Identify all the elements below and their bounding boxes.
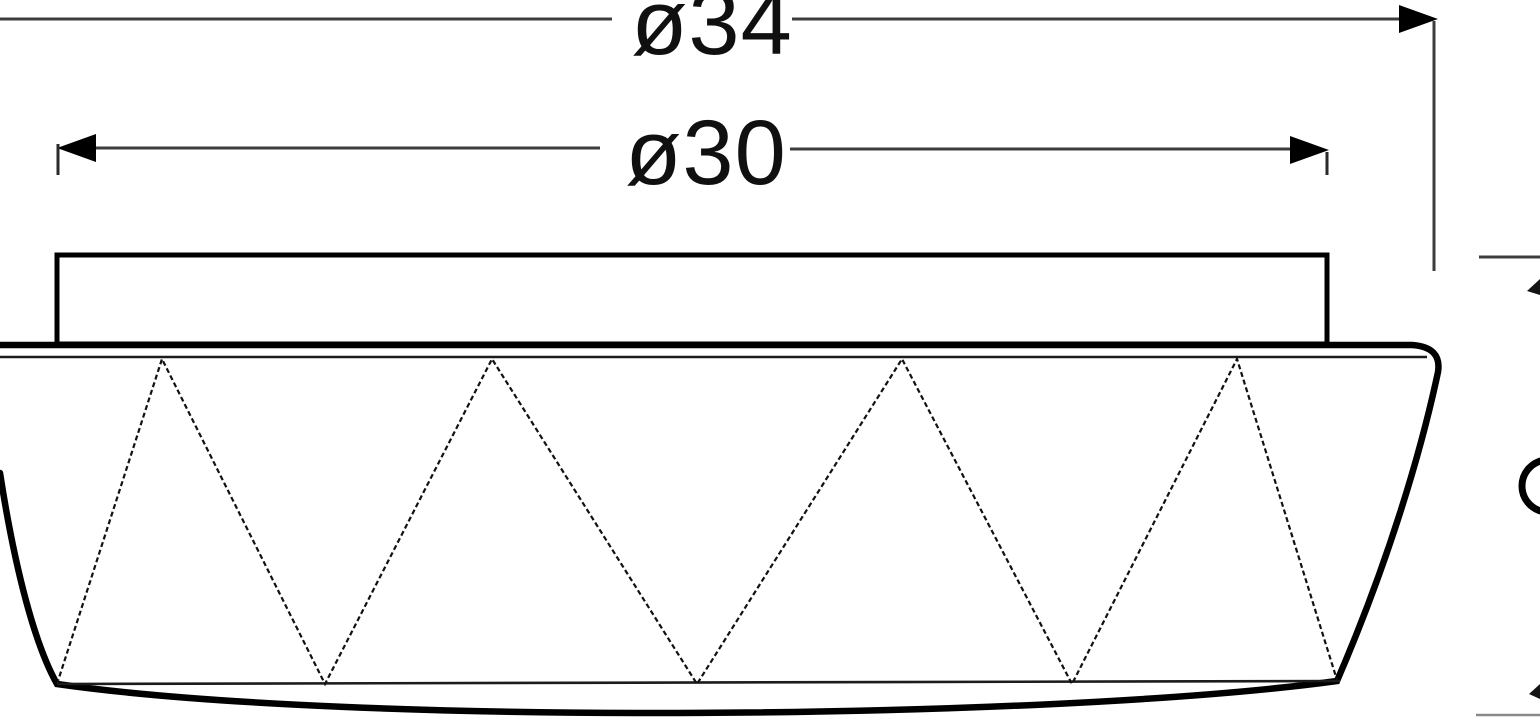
partial-arrow-bottom-icon — [1529, 684, 1540, 699]
partial-arrow-top-icon — [1527, 279, 1540, 295]
arrowhead-left-icon — [57, 134, 96, 162]
dim-label-outer-diameter: ø34 — [631, 0, 793, 74]
arrowhead-right-icon — [1399, 5, 1438, 33]
clipped-right-annotations — [1476, 257, 1540, 715]
dimension-plate-diameter: ø30 — [57, 102, 1329, 204]
partial-diameter-glyph — [1522, 460, 1540, 512]
mounting-plate — [57, 255, 1327, 344]
arrowhead-right-icon — [1290, 136, 1329, 164]
dim-label-plate-diameter: ø30 — [625, 102, 787, 204]
lamp-fixture — [0, 255, 1438, 713]
lamp-dimension-drawing: ø34 ø30 — [0, 0, 1540, 721]
shade-body — [0, 345, 1438, 713]
technical-drawing-canvas: ø34 ø30 — [0, 0, 1540, 721]
